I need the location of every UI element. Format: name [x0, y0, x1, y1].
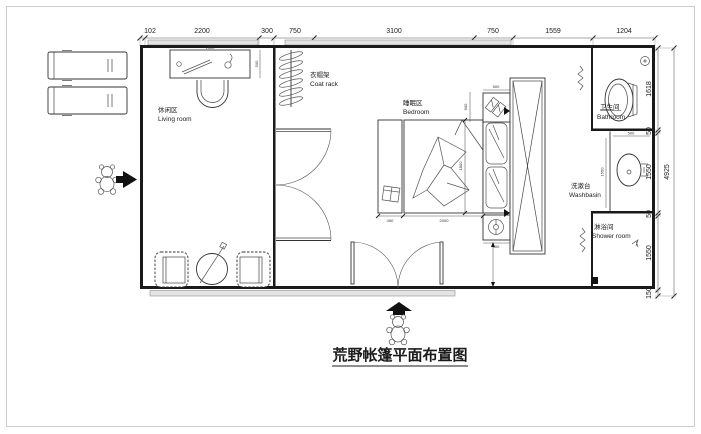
- coat-rack-area: 衣帽架 Coat rack: [279, 50, 339, 107]
- dim-headboard-height: 600: [463, 103, 468, 110]
- dim-desk-width: 1500: [206, 45, 216, 50]
- living-room-label-en: Living room: [158, 116, 192, 123]
- wall-bottom: [140, 286, 655, 289]
- living-room: 1500 500 休闲区 Living room: [155, 45, 270, 287]
- dim-basin-width: 500: [628, 131, 635, 136]
- wall-washbasin-shower: [591, 211, 652, 214]
- wall-living-hall: [273, 48, 276, 286]
- armchair-icon: [237, 252, 270, 287]
- arrow-up-icon: [386, 302, 412, 311]
- teddy-bear-sketch: [387, 315, 410, 345]
- bedroom: 睡眠区 Bedroom: [376, 78, 545, 287]
- round-table-icon: [197, 242, 228, 284]
- dim-right-1550a: 1550: [646, 164, 653, 180]
- curtain-break-icon: [578, 66, 583, 90]
- dim-top-750b: 750: [487, 28, 499, 35]
- washbasin-label-en: Washbasin: [569, 192, 601, 199]
- dim-top-1559: 1559: [545, 28, 561, 35]
- dim-bed-length: 2000: [440, 218, 450, 223]
- washbasin-area: 500 1550 洗漱台 Washbasin: [569, 131, 650, 212]
- wall-shower-left: [591, 213, 593, 286]
- washbasin-label-zh: 洗漱台: [571, 181, 591, 190]
- arrow-right-icon: [123, 171, 137, 188]
- double-swing-door-icon: [276, 129, 331, 241]
- wardrobe-icon: [510, 78, 545, 254]
- bedside-lamp-icon: [483, 209, 510, 240]
- floor-drain-cross: [643, 59, 647, 63]
- entrance-bottom: [386, 302, 412, 345]
- wall-top: [140, 45, 655, 48]
- coat-rack-label-en: Coat rack: [310, 81, 339, 88]
- armchair-icon: [155, 252, 188, 287]
- dim-top-300: 300: [261, 28, 273, 35]
- bedroom-label-en: Bedroom: [403, 109, 429, 116]
- dimension-chain-right: 1618 50 1550 50 1550 150 4925: [646, 46, 677, 299]
- entrance-left: [96, 165, 137, 195]
- washbasin-icon: [617, 154, 648, 186]
- arrow-right-stem: [116, 176, 123, 183]
- dim-right-1618: 1618: [646, 81, 653, 97]
- curtain-break-icon: [580, 228, 585, 252]
- teddy-bear-sketch: [96, 165, 119, 195]
- coat-rack-icon: [279, 50, 304, 107]
- dim-desk-depth: 500: [254, 60, 259, 67]
- shower-label-en: Shower room: [592, 233, 631, 240]
- dim-right-overall-4925: 4925: [664, 164, 671, 180]
- lounger-icon: [48, 51, 127, 81]
- dim-washbasin-depth: 1550: [600, 167, 605, 177]
- headboard-pillows-icon: [483, 120, 510, 213]
- wall-left: [140, 45, 143, 289]
- dim-top-3100: 3100: [386, 28, 402, 35]
- shower-head-icon: [632, 240, 638, 247]
- desk-icon: [170, 50, 250, 78]
- wall-bathroom-left: [591, 48, 593, 130]
- bathroom-label-zh: 卫生间: [600, 102, 620, 111]
- dim-top-1204: 1204: [616, 28, 632, 35]
- slipper-box-icon: [483, 93, 510, 122]
- bed-icon: [404, 120, 483, 213]
- shower-room: 淋浴间 Shower room: [580, 222, 638, 284]
- bathroom-label-en: Bathroom: [597, 114, 625, 121]
- shower-drain-icon: [591, 277, 598, 284]
- coat-rack-label-zh: 衣帽架: [310, 70, 330, 79]
- french-doors-icon: [351, 242, 443, 288]
- floorplan-drawing: 102 2200 300 750 3100 750 1559 1204: [0, 0, 701, 434]
- plan-title: 荒野帐篷平面布置图: [332, 346, 467, 364]
- dim-top-102: 102: [144, 28, 156, 35]
- loungers: [48, 51, 127, 116]
- wall-right: [652, 45, 655, 289]
- bedside-table-icon: [378, 120, 402, 213]
- bathroom: 卫生间 Bathroom: [578, 57, 650, 122]
- arrow-up-stem: [393, 311, 405, 315]
- living-room-label-zh: 休闲区: [158, 105, 178, 114]
- dim-bed-width: 1800: [458, 161, 463, 171]
- floorplan-page: 102 2200 300 750 3100 750 1559 1204: [0, 0, 701, 434]
- desk-chair-icon: [197, 80, 228, 108]
- shower-label-zh: 淋浴间: [594, 222, 614, 231]
- dim-slipper-width: 500: [493, 84, 500, 89]
- wall-bathroom-washbasin: [591, 129, 652, 132]
- bedroom-label-zh: 睡眠区: [403, 99, 423, 107]
- dim-bedside-width: 450: [387, 218, 394, 223]
- lounger-icon: [48, 86, 127, 116]
- dim-top-750a: 750: [289, 28, 301, 35]
- dim-top-2200: 2200: [194, 28, 210, 35]
- dim-right-1550b: 1550: [646, 245, 653, 261]
